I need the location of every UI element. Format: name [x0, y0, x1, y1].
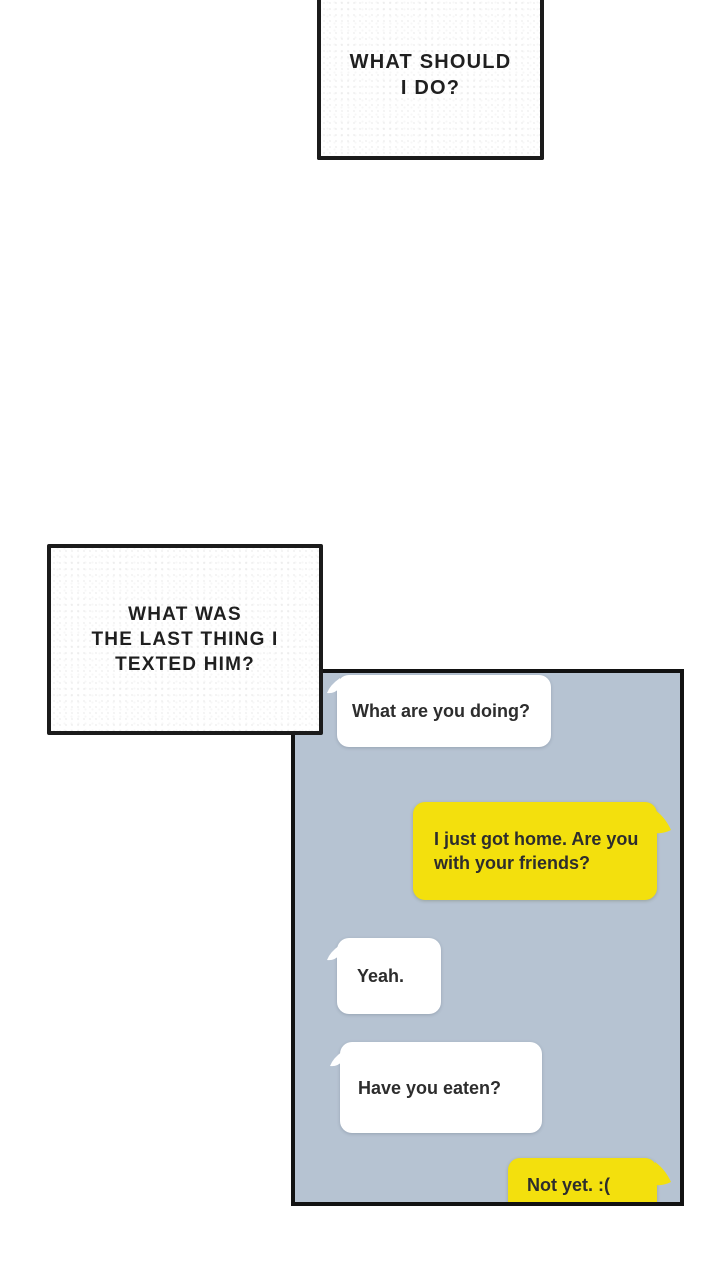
bubble-tail-right-icon — [655, 809, 672, 841]
chat-message-text: Have you eaten? — [358, 1076, 501, 1100]
thought-box-2: WHAT WAS THE LAST THING I TEXTED HIM? — [47, 544, 323, 735]
bubble-tail-left-icon — [330, 1051, 344, 1079]
comic-page: WHAT SHOULD I DO? What are you doing? I … — [0, 0, 728, 1270]
bubble-tail-left-icon — [327, 945, 341, 973]
chat-message-text: Not yet. :( — [527, 1173, 610, 1197]
chat-bubble-sent: Not yet. :( — [508, 1158, 657, 1206]
thought-text-2-line-1: WHAT WAS — [91, 602, 278, 627]
bubble-tail-left-icon — [327, 678, 341, 706]
chat-message-text: What are you doing? — [352, 699, 530, 723]
thought-text-2-line-2: THE LAST THING I — [91, 627, 278, 652]
thought-text-1-line-2: I DO? — [350, 75, 512, 101]
bubble-tail-right-icon — [655, 1161, 672, 1193]
chat-bubble-received: What are you doing? — [337, 675, 551, 747]
chat-message-text: I just got home. Are you with your frien… — [434, 827, 639, 875]
thought-text-1: WHAT SHOULD I DO? — [350, 43, 512, 101]
thought-text-2: WHAT WAS THE LAST THING I TEXTED HIM? — [91, 602, 278, 677]
thought-text-1-line-1: WHAT SHOULD — [350, 49, 512, 75]
chat-panel: What are you doing? I just got home. Are… — [291, 669, 684, 1206]
chat-bubble-received: Yeah. — [337, 938, 441, 1014]
chat-message-text: Yeah. — [357, 964, 404, 988]
thought-box-1: WHAT SHOULD I DO? — [317, 0, 544, 160]
chat-bubble-received: Have you eaten? — [340, 1042, 542, 1133]
thought-text-2-line-3: TEXTED HIM? — [91, 652, 278, 677]
chat-bubble-sent: I just got home. Are you with your frien… — [413, 802, 657, 900]
